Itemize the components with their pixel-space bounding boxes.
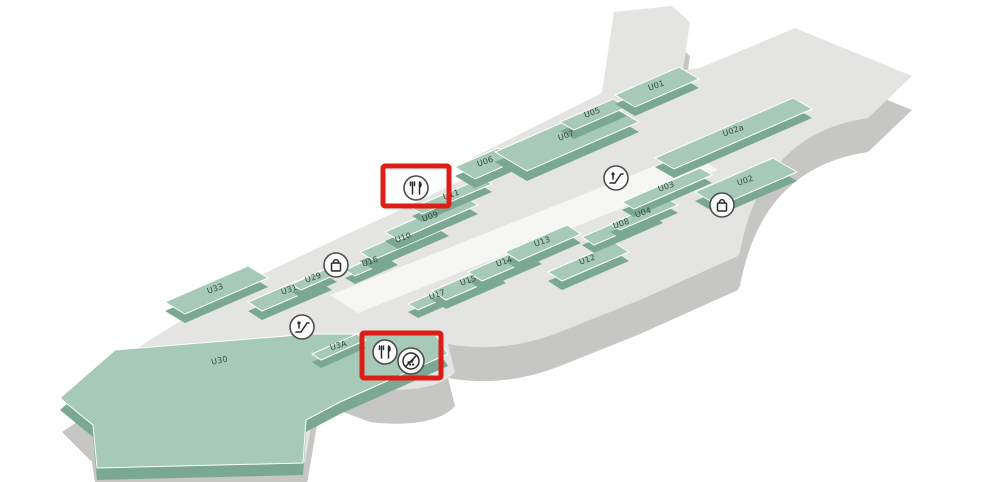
floorplan-figure: U01 U02a U02 U03 U04 U05 U06 U07 U08 U09… (0, 0, 996, 482)
no-cart-icon (398, 348, 424, 374)
shopping-bag-icon (710, 193, 734, 217)
dining-icon (404, 176, 428, 200)
escalator-icon (604, 166, 628, 190)
floorplan-canvas: U01 U02a U02 U03 U04 U05 U06 U07 U08 U09… (0, 0, 996, 482)
dining-icon (373, 340, 397, 364)
shopping-bag-icon (324, 253, 348, 277)
escalator-icon (290, 315, 314, 339)
